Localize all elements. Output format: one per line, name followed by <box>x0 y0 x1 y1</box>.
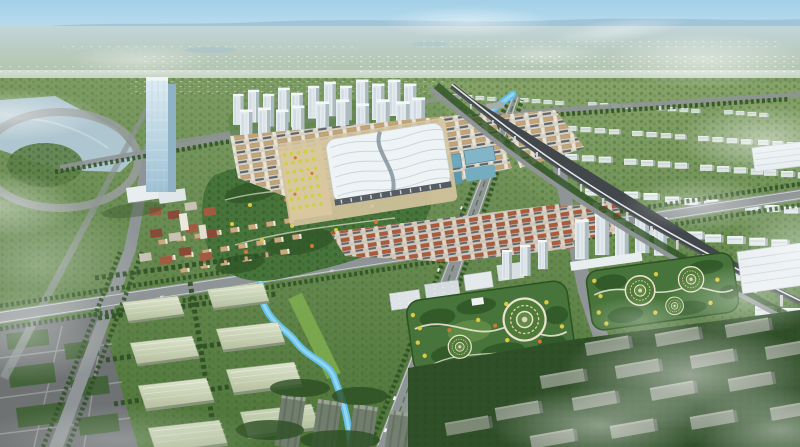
rendering-canvas <box>0 0 800 447</box>
aerial-masterplan-rendering <box>0 0 800 447</box>
